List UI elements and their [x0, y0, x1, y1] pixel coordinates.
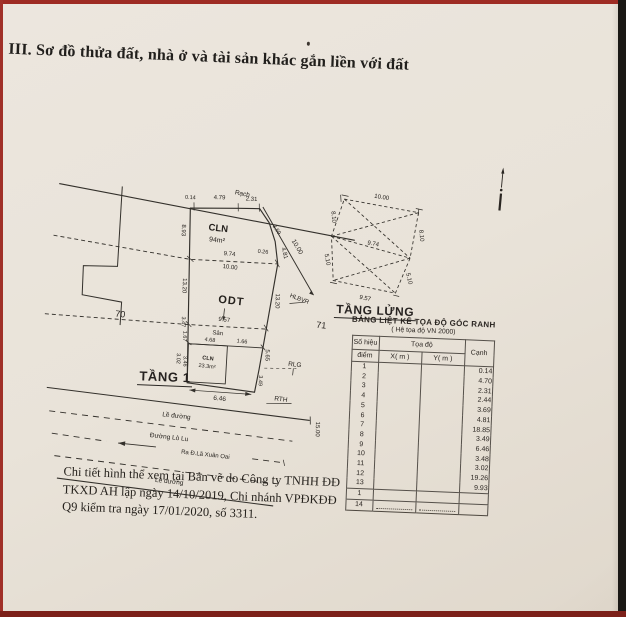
mezz-dim-1000: 10.00: [374, 194, 390, 202]
road-shoulder-label-1: Lề đường: [162, 409, 192, 421]
rth-label: RTH: [274, 395, 288, 403]
x-cell: [372, 500, 415, 513]
dim-302: 3.02: [175, 353, 181, 364]
mezz-dim-510-left: 5.10: [323, 253, 331, 266]
dim-1000-inner: 10.00: [222, 264, 238, 272]
photo-frame-right: [618, 0, 626, 617]
neighbour-boundary: [77, 183, 135, 325]
hlbvr-label: HLBVR: [289, 293, 310, 306]
mezzanine-diagram: 10.00 8.10 5.10 9.74 8.10 5.10 9.57: [308, 171, 443, 308]
dim-1000-hlbvr: 10.00: [290, 238, 305, 256]
dim-468: 4.68: [204, 337, 215, 344]
y-cell: [415, 502, 458, 515]
mezz-dim-510-right: 5.10: [404, 272, 413, 285]
col-header-point-1: Số hiệu: [352, 335, 380, 350]
dim-1500: 15.00: [314, 422, 320, 438]
mezzanine-divider: [330, 236, 411, 258]
cln-box-area: 23.3m²: [198, 363, 216, 371]
dim-231: 2.31: [246, 196, 259, 202]
dim-026: 0.26: [257, 249, 268, 256]
mezz-dim-974: 9.74: [367, 240, 380, 248]
scan-speck: [307, 42, 310, 46]
dim-479: 4.79: [214, 195, 227, 201]
yard-label: Sân: [212, 330, 223, 337]
dim-166: 1.66: [236, 338, 247, 345]
cln-zone-label: CLN: [208, 222, 229, 235]
odt-zone-label: ODT: [218, 294, 245, 309]
mezz-dim-957: 9.57: [359, 295, 372, 303]
dim-974: 9.74: [223, 251, 236, 258]
dim-957: 9.57: [218, 317, 231, 324]
direction-arrowhead: [118, 441, 125, 446]
cln-zone-area: 94m²: [209, 236, 226, 245]
direction-label: Ra Đ.Lã Xuân Oai: [181, 450, 230, 461]
rlg-label: RLG: [288, 361, 302, 369]
street-name-label: Đường Lò Lu: [149, 432, 189, 443]
col-header-point-2: điểm: [351, 349, 378, 362]
dim-565: 5.65: [264, 349, 270, 361]
neighbour-parcel-71: 71: [316, 320, 327, 331]
photo-frame-bottom: [0, 611, 626, 617]
dim-1320-left: 13.20: [181, 278, 187, 294]
edge-value: [458, 504, 487, 516]
north-arrow-icon: [494, 166, 508, 216]
floor-1-label: TẦNG 1: [137, 368, 193, 387]
dim-014: 0.14: [185, 195, 196, 201]
footnote: Chi tiết hình thể xem tại Bản vẽ do Công…: [62, 463, 374, 528]
dim-349: 3.49: [257, 375, 263, 386]
section-title: III. Sơ đồ thửa đất, nhà ở và tài sản kh…: [8, 41, 409, 75]
cln-box-label: CLN: [202, 355, 214, 362]
cln-odt-divider: [53, 235, 279, 269]
mezz-dim-810-right: 8.10: [417, 230, 424, 243]
dim-167: 1.67: [181, 331, 187, 342]
photo-frame-top: [0, 0, 626, 4]
photo-frame-left: [0, 0, 3, 617]
dim-893: 8.93: [180, 224, 186, 236]
neighbour-parcel-70: 70: [115, 308, 126, 319]
col-header-edge: Cạnh: [464, 340, 494, 367]
dim-346: 3.46: [181, 356, 187, 367]
dim-646: 6.46: [213, 395, 227, 403]
arrow-to-yard-line: [224, 308, 225, 316]
document-page: III. Sơ đồ thửa đất, nhà ở và tài sản kh…: [0, 0, 618, 617]
dim-1320-right: 13.20: [273, 293, 279, 309]
dim-347: 3.47: [180, 316, 186, 327]
scanned-document-photo: III. Sơ đồ thửa đất, nhà ở và tài sản kh…: [0, 0, 626, 617]
mezz-dim-810-left: 8.10: [329, 211, 336, 224]
yard-divider: [45, 305, 267, 338]
